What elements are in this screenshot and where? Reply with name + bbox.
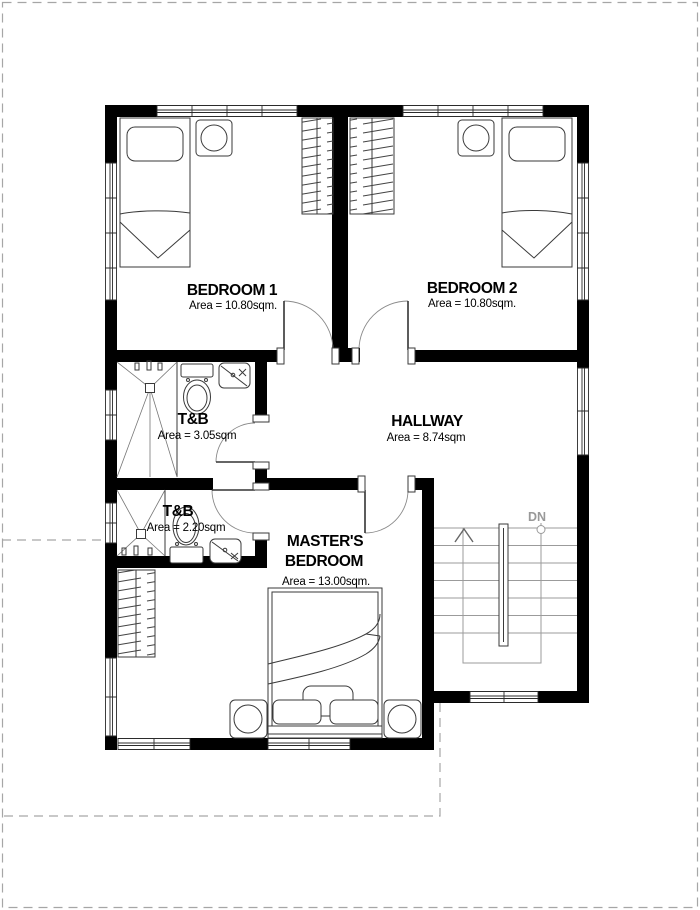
pillow-icon xyxy=(330,700,378,724)
door-swing-arc xyxy=(365,490,408,533)
pillow-icon xyxy=(509,127,565,161)
master-furniture xyxy=(118,570,421,738)
hallway-label: HALLWAY xyxy=(391,413,464,430)
window xyxy=(105,163,117,300)
window xyxy=(105,503,117,543)
window xyxy=(105,390,117,440)
stairs-icon: DN xyxy=(434,510,577,663)
bedside-table-icon xyxy=(384,700,421,738)
door-jamb xyxy=(352,348,359,364)
sink-icon xyxy=(210,539,241,563)
marker-circle xyxy=(537,526,545,534)
room-labels: BEDROOM 1 Area = 10.80sqm. BEDROOM 2 Are… xyxy=(147,280,518,588)
door-jamb xyxy=(253,462,269,469)
window xyxy=(268,738,350,750)
bedroom2-label: BEDROOM 2 xyxy=(427,280,517,297)
window xyxy=(577,163,589,300)
window xyxy=(403,105,543,117)
tb2-area: Area = 2.20sqm xyxy=(147,522,226,534)
window xyxy=(105,658,117,736)
toilet-icon xyxy=(181,364,213,414)
tb1-area: Area = 3.05sqm xyxy=(158,430,237,442)
door-swing-arc xyxy=(284,301,333,350)
bedroom1-door xyxy=(277,301,339,364)
master-label-line1: MASTER'S xyxy=(287,533,363,550)
stairs-down-label: DN xyxy=(528,510,546,524)
window xyxy=(470,691,538,703)
window xyxy=(157,105,297,117)
down-direction-marker: DN xyxy=(528,510,546,534)
door-jamb xyxy=(358,476,365,492)
door-swing-arc xyxy=(216,423,255,462)
door-swing-arc xyxy=(359,301,408,350)
master-label-line2: BEDROOM xyxy=(285,553,363,570)
direction-arrow-icon xyxy=(455,529,473,542)
bedside-table-icon xyxy=(230,700,267,738)
pillow-icon xyxy=(273,700,321,724)
bed-icon xyxy=(268,588,382,738)
floor-plan-drawing: DN BEDROOM 1 Area = 10.80sqm. BEDROOM 2 … xyxy=(0,0,700,910)
tb2-label: T&B xyxy=(163,503,194,520)
door-jamb xyxy=(408,476,415,492)
door-jamb xyxy=(253,483,269,490)
bedroom1-furniture xyxy=(120,118,333,267)
door-jamb xyxy=(253,533,269,540)
door-jamb xyxy=(253,415,269,422)
shower-drain xyxy=(137,530,146,539)
door-jamb xyxy=(332,348,339,364)
tb1-door xyxy=(216,415,269,469)
pillow-icon xyxy=(127,127,183,161)
bedroom1-area: Area = 10.80sqm. xyxy=(189,300,277,312)
bedroom2-door xyxy=(352,301,415,364)
hallway-area: Area = 8.74sqm xyxy=(387,432,466,444)
shower-drain xyxy=(146,384,155,393)
window xyxy=(118,738,190,750)
doors xyxy=(212,301,415,540)
master-door xyxy=(358,476,415,533)
bedroom1-label: BEDROOM 1 xyxy=(187,282,278,299)
shower-icon xyxy=(117,361,177,477)
door-jamb xyxy=(277,348,284,364)
floor-plan-page: DN BEDROOM 1 Area = 10.80sqm. BEDROOM 2 … xyxy=(0,0,700,910)
bedroom2-furniture xyxy=(350,118,572,267)
bedroom2-area: Area = 10.80sqm. xyxy=(428,298,516,310)
tb1-label: T&B xyxy=(178,411,209,428)
sink-icon xyxy=(219,363,250,388)
door-jamb xyxy=(408,348,415,364)
master-area: Area = 13.00sqm. xyxy=(282,576,370,588)
window xyxy=(577,368,589,455)
